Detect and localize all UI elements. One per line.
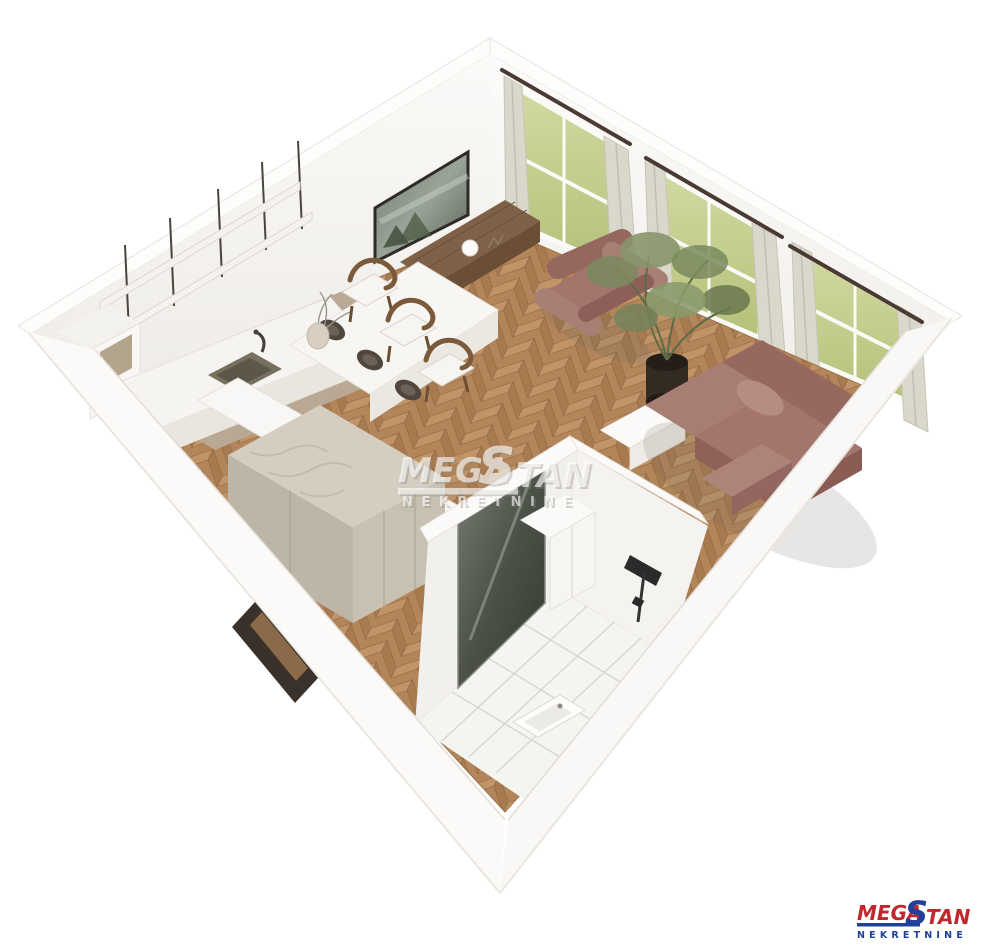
logo-text-tan: TAN: [926, 905, 971, 929]
watermark-text-tan: TAN: [516, 456, 591, 496]
logo-text-subtitle: NEKRETNINE: [857, 930, 967, 941]
apartment-3d-floorplan-render: MEGA S TAN NEKRETNINE MEGA S TAN NEKRETN…: [0, 0, 1000, 950]
watermark-text-subtitle: NEKRETNINE: [402, 495, 580, 510]
logo-underline: [857, 923, 920, 927]
console-lamp: [462, 240, 478, 256]
render-canvas: MEGA S TAN NEKRETNINE MEGA S TAN NEKRETN…: [0, 0, 1000, 950]
brand-logo: MEGA S TAN NEKRETNINE: [857, 894, 971, 941]
